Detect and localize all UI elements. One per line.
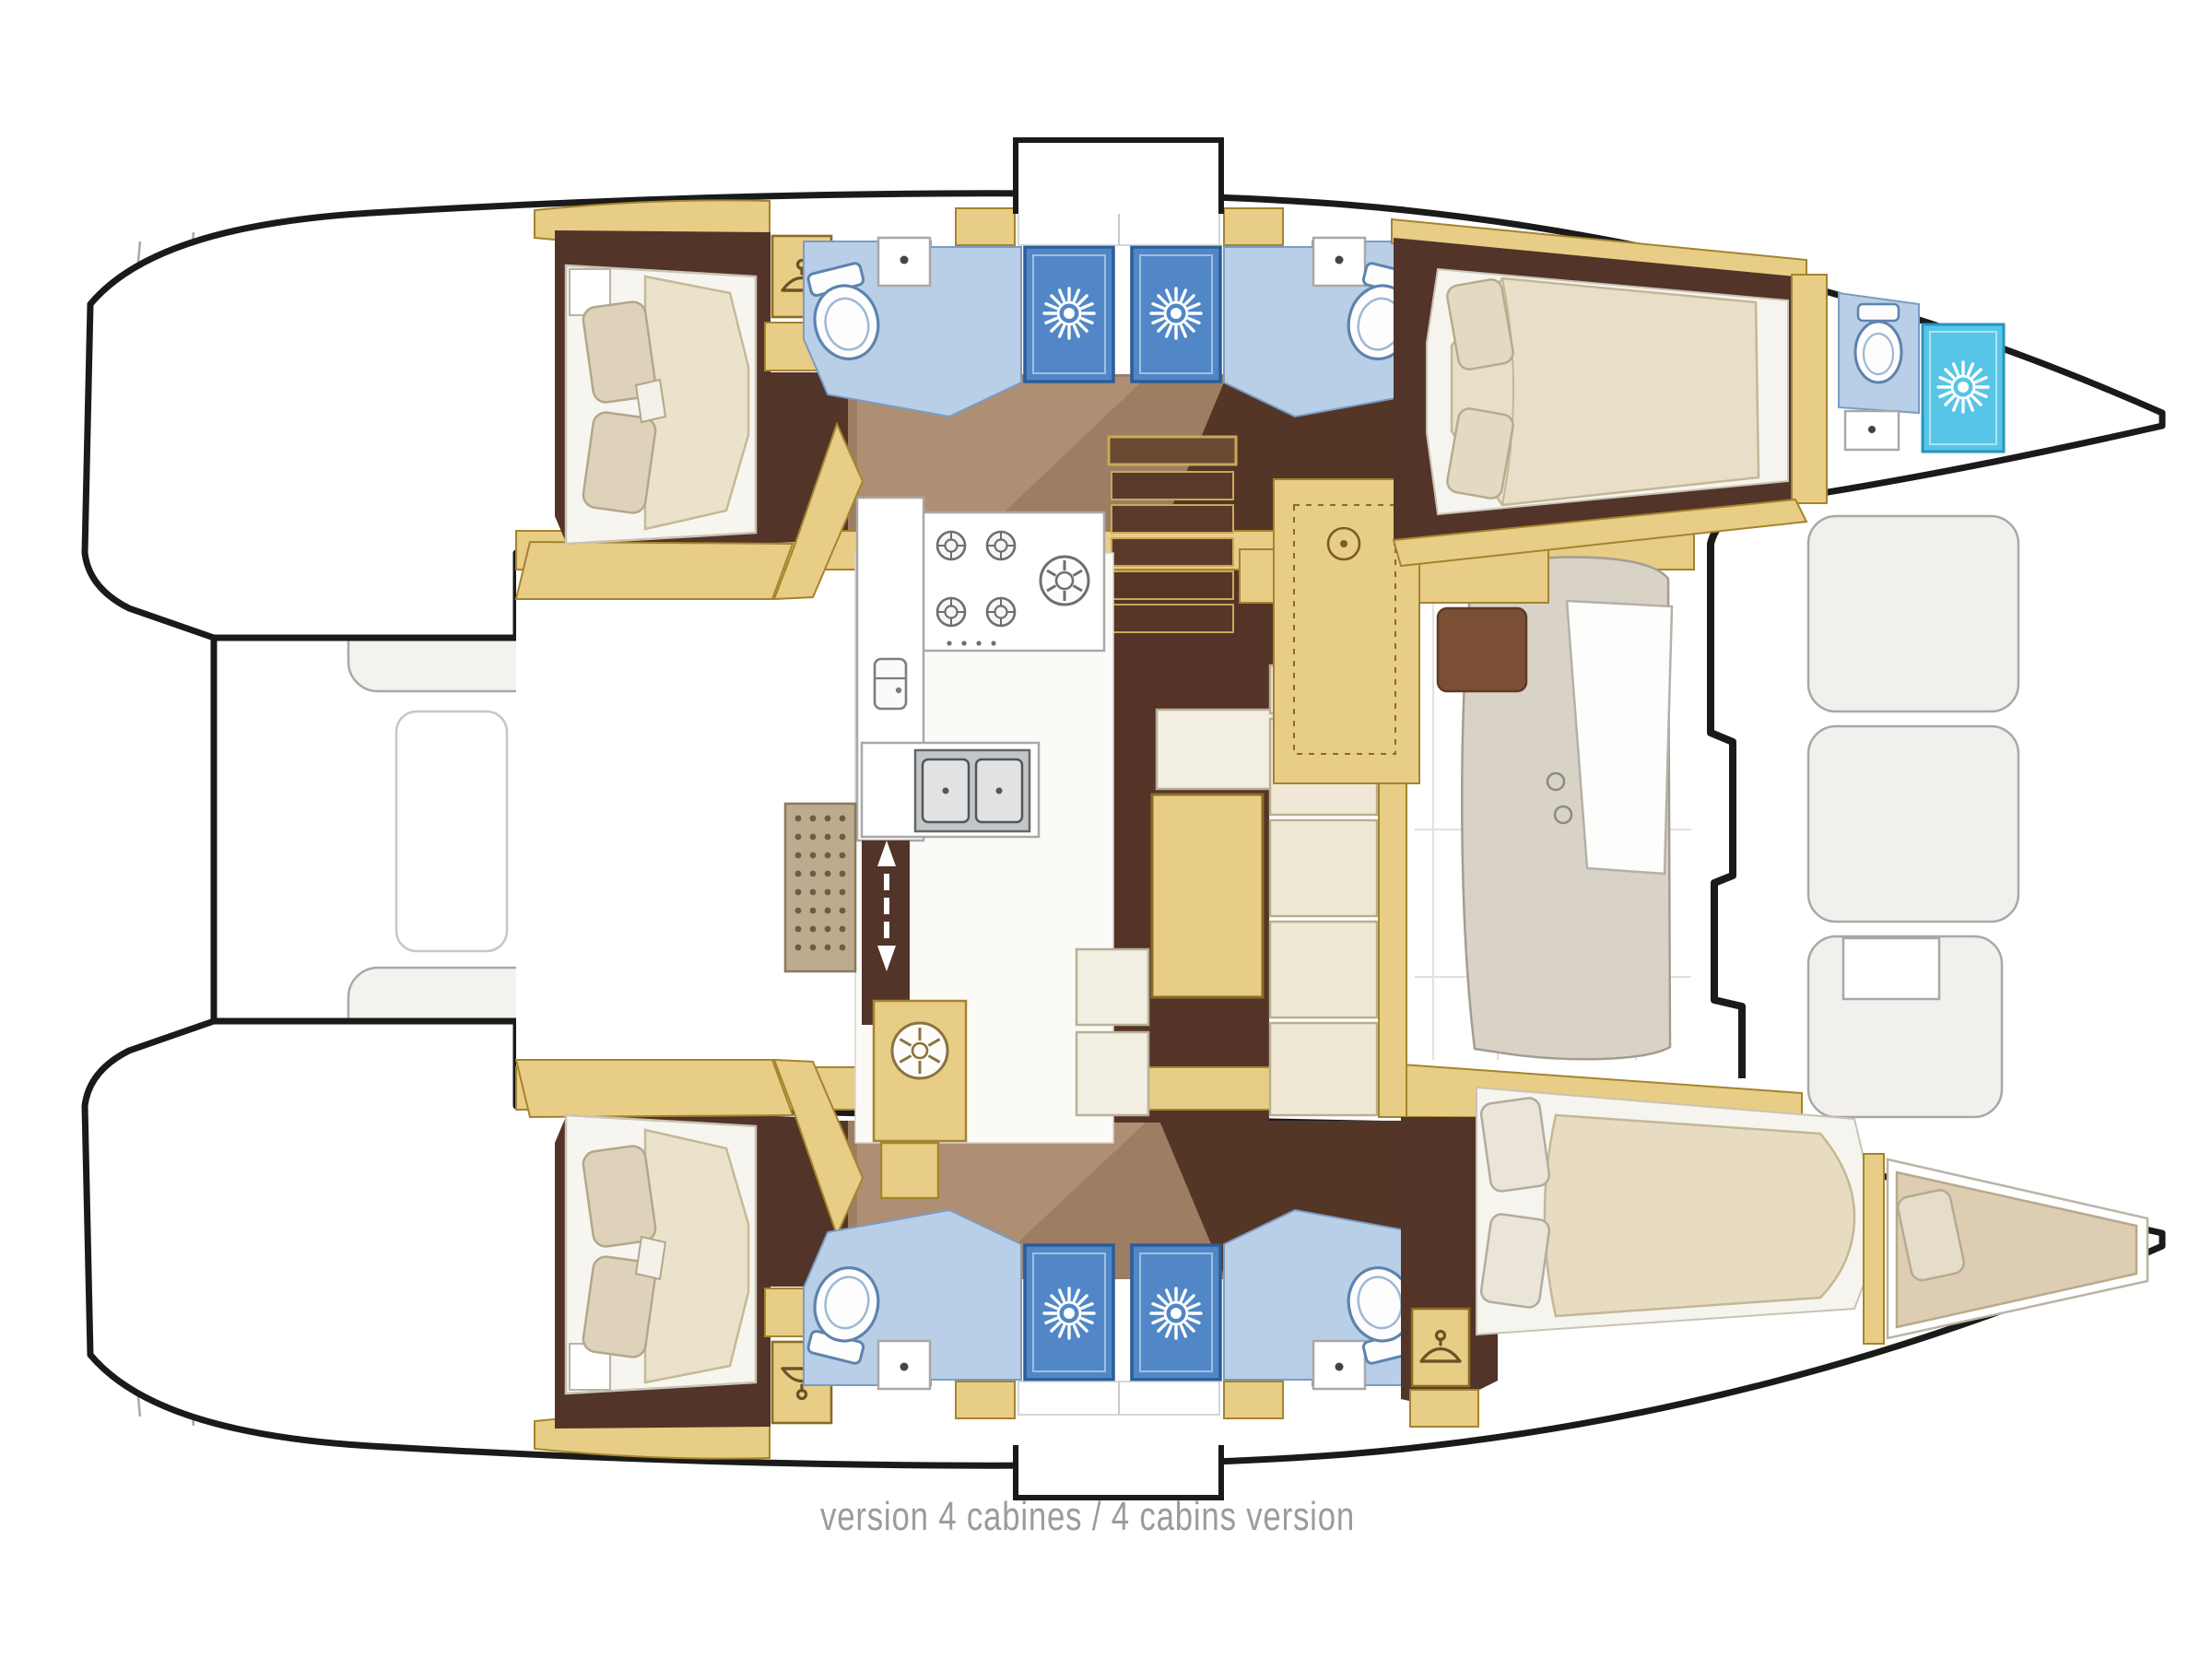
burner-icon [987, 532, 1015, 559]
shower-stall [1923, 324, 2004, 452]
caption: version 4 cabines / 4 cabins version [820, 1494, 1355, 1539]
floorplan-page: version 4 cabines / 4 cabins version [0, 0, 2212, 1658]
pillow [582, 411, 657, 514]
big-burner-icon [1041, 557, 1088, 605]
shower-icon [1151, 288, 1201, 338]
shower-stall [1132, 247, 1220, 382]
foredeck-pads [1808, 516, 2018, 1117]
catamaran-floorplan: version 4 cabines / 4 cabins version [0, 0, 2212, 1658]
shower-icon [1044, 288, 1094, 338]
burner-icon [937, 532, 965, 559]
pillow [1480, 1213, 1551, 1309]
burner-icon [987, 598, 1015, 626]
shower-stall [1025, 247, 1113, 382]
dinette-cushion [1077, 949, 1148, 1025]
double-bed [1477, 1088, 1873, 1335]
double-bed [566, 265, 756, 544]
nav-seat [1438, 608, 1526, 691]
bow-bathroom-port [1839, 293, 2004, 452]
vent-grid [785, 804, 855, 971]
pillow [1480, 1097, 1551, 1193]
fridge-icon [875, 659, 906, 709]
galley-double-sink [915, 750, 1030, 831]
mast-step-top [1016, 140, 1221, 214]
mast-step-bottom [1016, 1445, 1221, 1498]
dinette-cushion [1077, 1032, 1148, 1115]
burner-icon [937, 598, 965, 626]
double-bed [1427, 269, 1788, 514]
wardrobe [1410, 1309, 1478, 1427]
shower-icon [1938, 362, 1988, 412]
cabin-aft-starboard [516, 1060, 863, 1459]
dinette-table [1152, 794, 1263, 997]
bow-berth-starboard [1864, 1154, 2147, 1344]
fan-icon [892, 1023, 947, 1078]
cabin-fore-port [1392, 219, 1827, 566]
